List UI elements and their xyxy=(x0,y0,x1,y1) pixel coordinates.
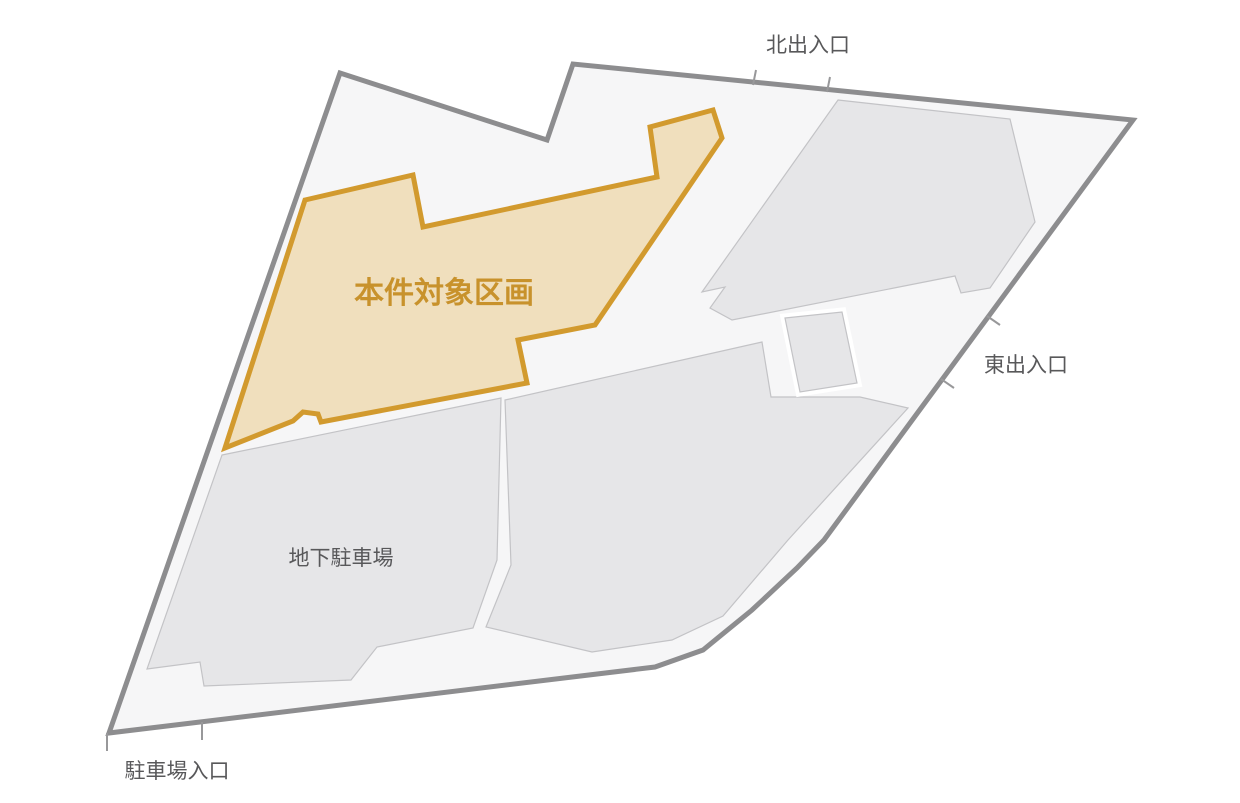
label-parking-entrance: 駐車場入口 xyxy=(125,760,230,783)
label-underground-parking: 地下駐車場 xyxy=(289,547,394,570)
label-subject-parcel: 本件対象区画 xyxy=(354,277,534,310)
label-east-entrance: 東出入口 xyxy=(984,354,1068,377)
label-north-entrance: 北出入口 xyxy=(766,34,850,57)
site-plan: 北出入口東出入口地下駐車場駐車場入口本件対象区画 xyxy=(0,0,1240,803)
site-plan-svg: 北出入口東出入口地下駐車場駐車場入口本件対象区画 xyxy=(0,0,1240,803)
